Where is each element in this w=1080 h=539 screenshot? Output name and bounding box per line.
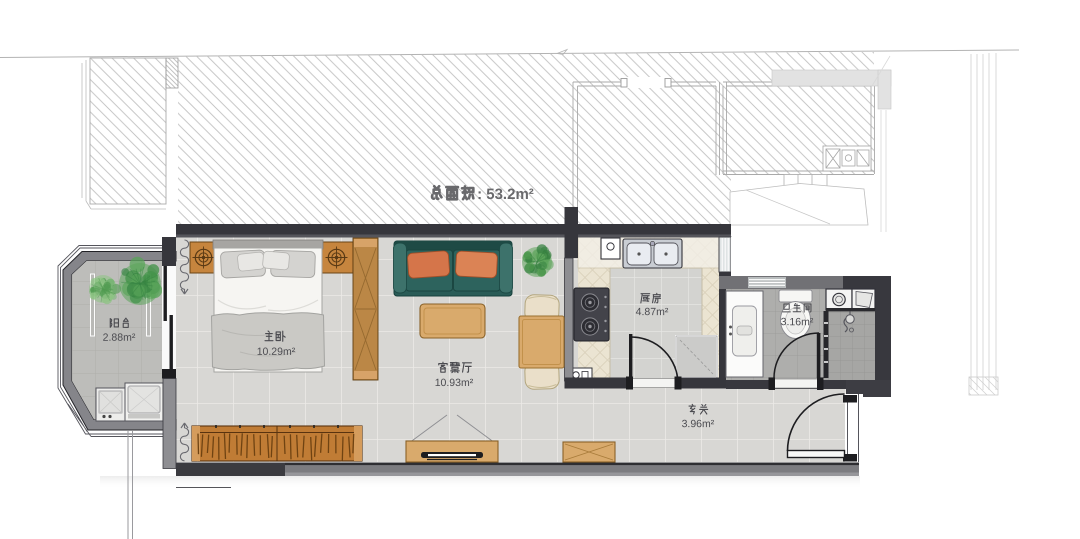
svg-text:4.87m²: 4.87m² bbox=[636, 306, 669, 318]
svg-text:2.88m²: 2.88m² bbox=[103, 332, 136, 344]
svg-text:10.29m²: 10.29m² bbox=[257, 346, 296, 358]
svg-text:3.16m²: 3.16m² bbox=[781, 316, 814, 328]
svg-text:10.93m²: 10.93m² bbox=[435, 377, 474, 389]
svg-text:: 53.2m²: : 53.2m² bbox=[477, 186, 534, 203]
svg-text:3.96m²: 3.96m² bbox=[682, 418, 715, 430]
